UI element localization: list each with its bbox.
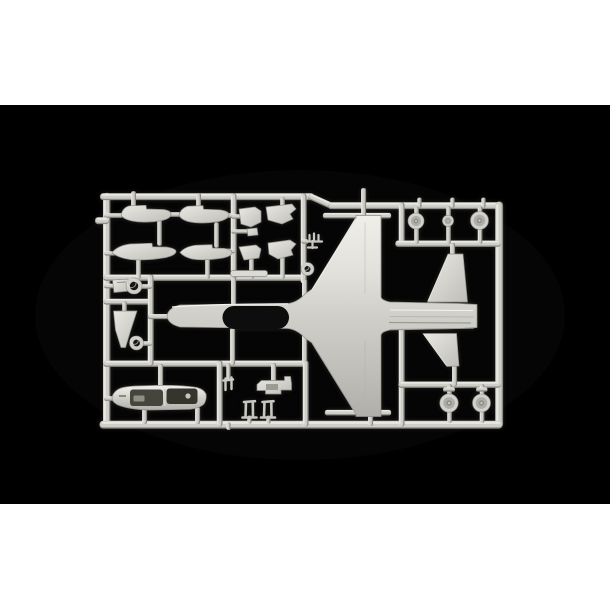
fuselage-panel-line-2 xyxy=(390,317,474,318)
ring-part-2-hole xyxy=(133,340,140,347)
small-part-g xyxy=(247,228,258,236)
product-photo xyxy=(0,0,610,610)
page xyxy=(0,0,610,610)
fuselage-panel-line-3 xyxy=(389,323,471,324)
wheel-main-3-axle xyxy=(448,402,450,404)
cockpit-opening xyxy=(223,306,290,329)
gearbay-notch xyxy=(266,384,278,390)
fuselage-panel-line-1 xyxy=(390,310,473,311)
wheel-nose-axle xyxy=(447,220,449,222)
tub-console xyxy=(134,396,145,402)
tub-detail-disc xyxy=(185,393,190,398)
rect-part-line xyxy=(117,282,126,283)
wheel-main-1-axle xyxy=(415,220,417,222)
ring-part-1-hole xyxy=(130,282,138,290)
strip-part xyxy=(231,271,268,277)
tub-inset-rear xyxy=(167,389,198,405)
wheel-main-4-axle xyxy=(481,402,483,404)
wheel-main-2-axle xyxy=(479,220,481,222)
gear-door-e xyxy=(239,207,261,227)
